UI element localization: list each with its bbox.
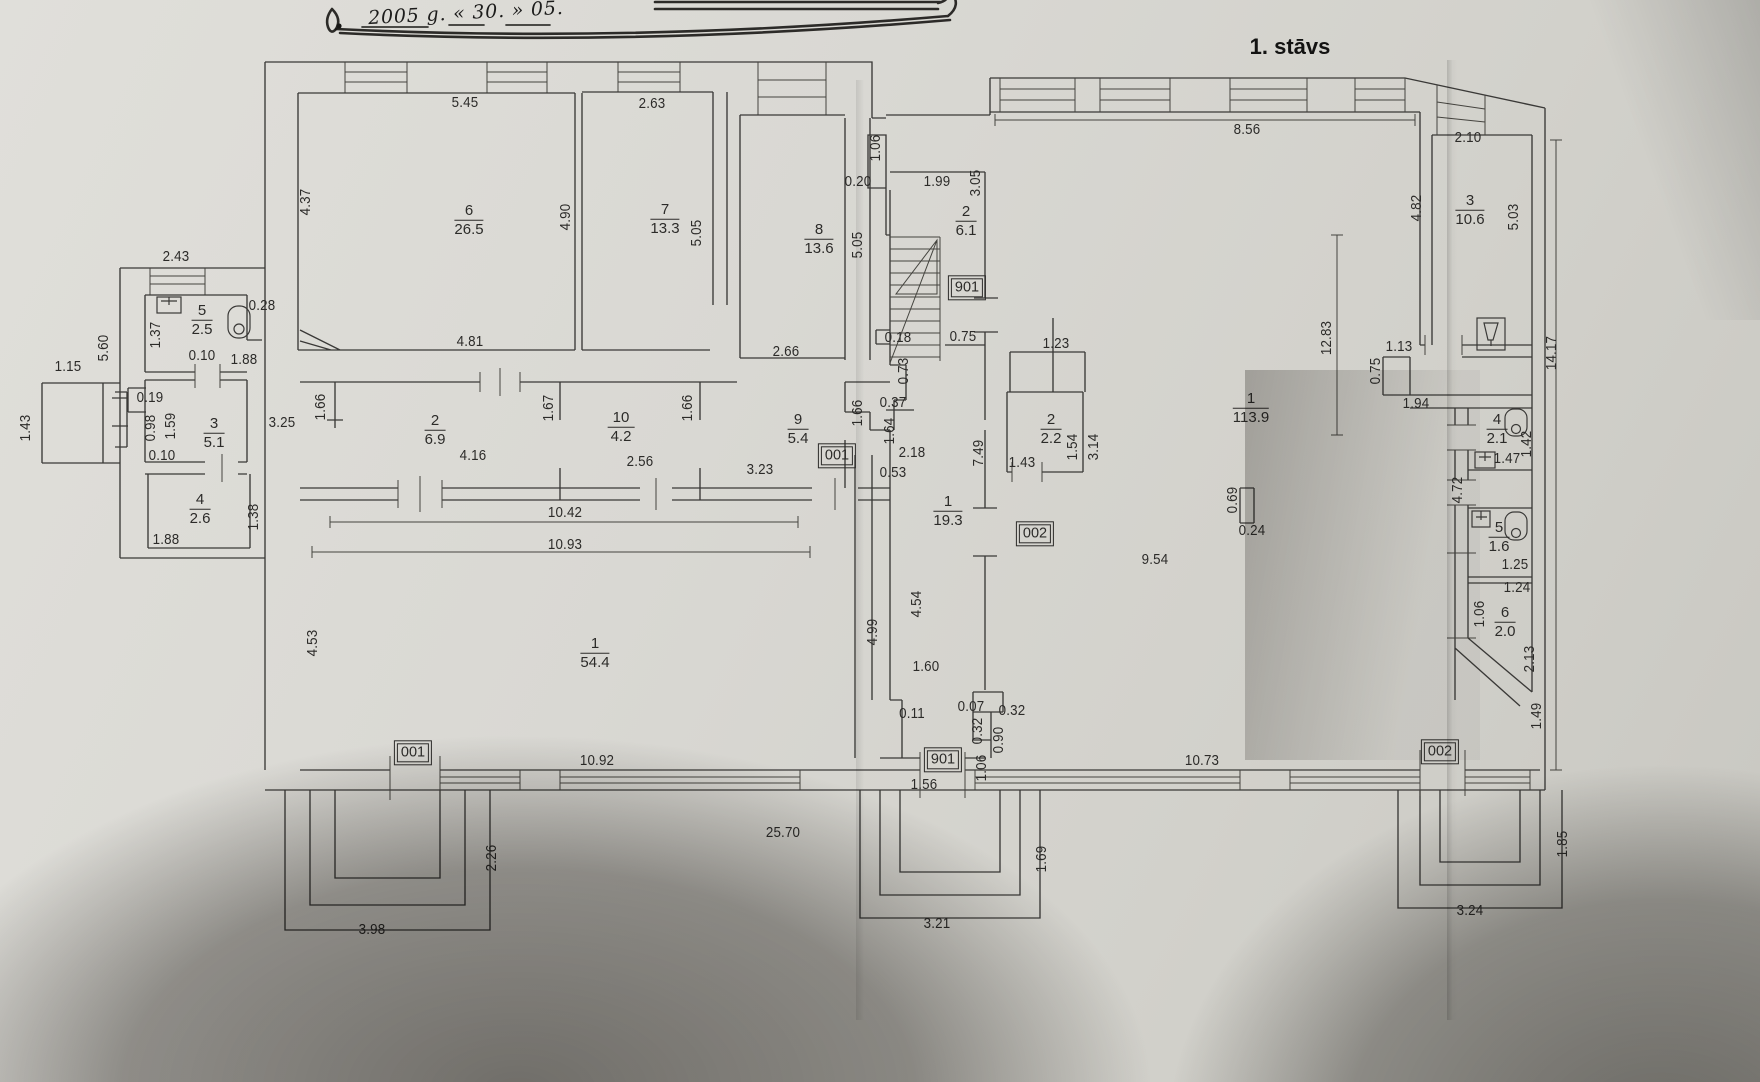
room-label: 52.5 — [192, 303, 213, 338]
dimension-label: 0.18 — [885, 330, 912, 346]
dimension-label: 25.70 — [766, 825, 800, 841]
room-label: 26.9 — [425, 413, 446, 448]
dimension-label: 5.05 — [850, 232, 866, 259]
dimension-label: 1.54 — [1065, 434, 1081, 461]
dimension-label: 1.66 — [680, 395, 696, 422]
room-label: 813.6 — [804, 222, 833, 257]
dimension-label: 2.63 — [639, 96, 666, 112]
dimension-label: 5.45 — [452, 95, 479, 111]
door-tag: 002 — [1019, 524, 1051, 543]
dimension-label: 1.49 — [1529, 703, 1545, 730]
dimension-label: 4.72 — [1450, 477, 1466, 504]
dimension-label: 0.32 — [999, 703, 1026, 719]
dimension-label: 10.73 — [1185, 753, 1219, 769]
door-tag: 901 — [927, 750, 959, 769]
dimension-label: 0.75 — [950, 329, 977, 345]
dimension-label: 1.47 — [1494, 451, 1521, 467]
door-tag: 002 — [1424, 742, 1456, 761]
dimension-label: 2.56 — [627, 454, 654, 470]
dimension-label: 3.24 — [1457, 903, 1484, 919]
dimension-label: 1.43 — [18, 415, 34, 442]
dimension-label: 9.54 — [1142, 552, 1169, 568]
dimension-label: 12.83 — [1319, 321, 1335, 355]
dimension-label: 1.06 — [868, 135, 884, 162]
dimension-label: 1.64 — [882, 418, 898, 445]
dimension-label: 2.66 — [773, 344, 800, 360]
room-label: 42.1 — [1487, 412, 1508, 447]
dimension-label: 4.54 — [909, 591, 925, 618]
floorplan-scan-page: 626.5713.3813.652.535.142.626.9104.295.4… — [0, 0, 1760, 1082]
dimension-label: 3.98 — [359, 922, 386, 938]
dimension-label: 3.14 — [1086, 434, 1102, 461]
dimension-label: 5.03 — [1506, 204, 1522, 231]
dimension-label: 7.49 — [971, 440, 987, 467]
dimension-label: 0.28 — [249, 298, 276, 314]
room-label: 51.6 — [1489, 520, 1510, 555]
dimension-label: 5.05 — [689, 220, 705, 247]
dimension-label: 8.56 — [1234, 122, 1261, 138]
dimension-label: 0.32 — [970, 718, 986, 745]
dimension-label: 2.18 — [899, 445, 926, 461]
dimension-label: 10.42 — [548, 505, 582, 521]
room-label: 42.6 — [190, 492, 211, 527]
dimension-label: 1.23 — [1043, 336, 1070, 352]
dimension-label: 1.59 — [163, 413, 179, 440]
dimension-label: 0.11 — [899, 706, 925, 722]
door-tag: 001 — [397, 743, 429, 762]
dimension-label: 4.16 — [460, 448, 487, 464]
dimension-label: 10.93 — [548, 537, 582, 553]
dimension-label: 3.05 — [968, 170, 984, 197]
door-tag: 001 — [821, 446, 853, 465]
dimension-label: 0.98 — [143, 415, 159, 442]
dimension-label: 1.88 — [153, 532, 180, 548]
dimension-label: 5.60 — [96, 335, 112, 362]
dimension-label: 0.24 — [1239, 523, 1266, 539]
door-tag: 901 — [951, 278, 983, 297]
dimension-label: 2.13 — [1522, 646, 1538, 673]
room-label: 62.0 — [1495, 605, 1516, 640]
room-label: 104.2 — [608, 410, 635, 445]
dimension-label: 1.56 — [911, 777, 938, 793]
dimension-label: 1.42 — [1519, 431, 1535, 458]
dimension-label: 0.19 — [137, 390, 164, 406]
dimension-label: 4.53 — [305, 630, 321, 657]
dimension-label: 0.53 — [880, 465, 907, 481]
dimension-label: 1.37 — [148, 322, 164, 349]
dimension-label: 1.06 — [974, 755, 990, 782]
dimension-label: 2.43 — [163, 249, 190, 265]
room-label: 310.6 — [1455, 193, 1484, 228]
dimension-label: 10.92 — [580, 753, 614, 769]
dimension-label: 0.69 — [1225, 487, 1241, 514]
dimension-label: 1.94 — [1403, 396, 1430, 412]
dimension-label: 3.21 — [924, 916, 951, 932]
dimension-label: 1.25 — [1502, 557, 1529, 573]
dimension-label: 1.66 — [850, 400, 866, 427]
dimension-label: 1.13 — [1386, 339, 1413, 355]
dimension-label: 1.06 — [1472, 601, 1488, 628]
dimension-label: 3.23 — [747, 462, 774, 478]
dimension-label: 0.73 — [896, 358, 912, 385]
dimension-label: 0.07 — [958, 699, 985, 715]
room-label: 22.2 — [1041, 412, 1062, 447]
dimension-label: 1.67 — [541, 395, 557, 422]
room-label: 1113.9 — [1233, 391, 1269, 426]
room-label: 26.1 — [956, 204, 977, 239]
dimension-label: 4.82 — [1409, 195, 1425, 222]
room-label: 119.3 — [933, 494, 962, 529]
dimension-label: 0.37 — [880, 395, 907, 411]
room-label: 713.3 — [650, 202, 679, 237]
dimension-label: 1.66 — [313, 394, 329, 421]
dimension-label: 1.69 — [1034, 846, 1050, 873]
floor-title: 1. stāvs — [1250, 34, 1331, 60]
dimension-label: 1.43 — [1009, 455, 1036, 471]
dimension-label: 3.25 — [269, 415, 296, 431]
dimension-label: 1.88 — [231, 352, 258, 368]
dimension-label: 4.37 — [298, 189, 314, 216]
dimension-label: 1.15 — [55, 359, 82, 375]
dimension-label: 2.26 — [484, 845, 500, 872]
dimension-label: 2.10 — [1455, 130, 1482, 146]
dimension-label: 0.75 — [1368, 358, 1384, 385]
dimension-label: 0.20 — [845, 174, 872, 190]
dimension-label: 1.60 — [913, 659, 940, 675]
dimension-label: 1.99 — [924, 174, 951, 190]
dimension-label: 0.10 — [189, 348, 216, 364]
dimension-label: 4.81 — [457, 334, 484, 350]
label-layer: 626.5713.3813.652.535.142.626.9104.295.4… — [0, 0, 1760, 1082]
dimension-label: 14.17 — [1544, 336, 1560, 370]
dimension-label: 1.38 — [246, 504, 262, 531]
dimension-label: 1.24 — [1504, 580, 1531, 596]
room-label: 154.4 — [580, 636, 609, 671]
dimension-label: 1.85 — [1555, 831, 1571, 858]
dimension-label: 0.90 — [991, 727, 1007, 754]
room-label: 626.5 — [454, 203, 483, 238]
dimension-label: 0.10 — [149, 448, 176, 464]
room-label: 95.4 — [788, 412, 809, 447]
dimension-label: 4.99 — [865, 619, 881, 646]
room-label: 35.1 — [204, 416, 225, 451]
dimension-label: 4.90 — [558, 204, 574, 231]
